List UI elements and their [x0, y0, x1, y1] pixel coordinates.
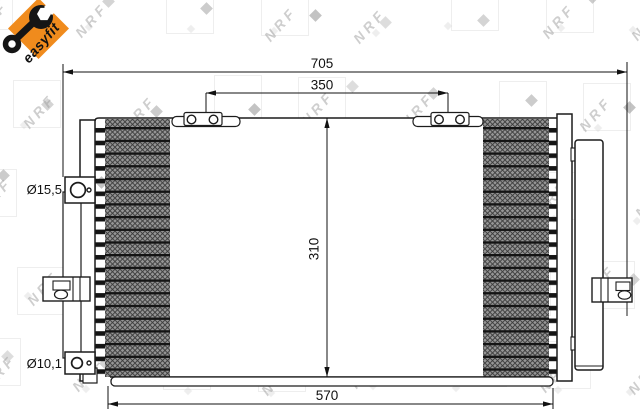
- core-fins-right: [483, 119, 549, 377]
- condenser-body: [63, 113, 603, 387]
- top-bracket-right: [413, 113, 483, 127]
- dim-label-705: 705: [311, 56, 334, 71]
- easyfit-badge: easyfit: [0, 0, 110, 110]
- bottom-header-plate: [111, 377, 553, 386]
- dim-label-310: 310: [307, 238, 322, 261]
- core-fins-left: [105, 119, 170, 377]
- right-mid-bracket: [592, 278, 632, 302]
- dim-label-570: 570: [316, 388, 339, 403]
- left-mid-bracket: [43, 277, 90, 301]
- top-port: [65, 177, 95, 203]
- port-label-bottom: Ø10,1: [27, 356, 62, 371]
- top-bracket-left: [172, 113, 240, 127]
- receiver-drier: [575, 140, 603, 370]
- right-tank: [557, 114, 572, 381]
- left-side-pipe: [63, 192, 81, 358]
- left-tank: [80, 120, 95, 381]
- technical-drawing-page: NRFNRFNRFNRFNRFNRFNRFNRFNRFNRFNRFNRFNRFN…: [0, 0, 640, 410]
- port-label-top: Ø15,5: [27, 182, 62, 197]
- dim-label-350: 350: [311, 78, 334, 93]
